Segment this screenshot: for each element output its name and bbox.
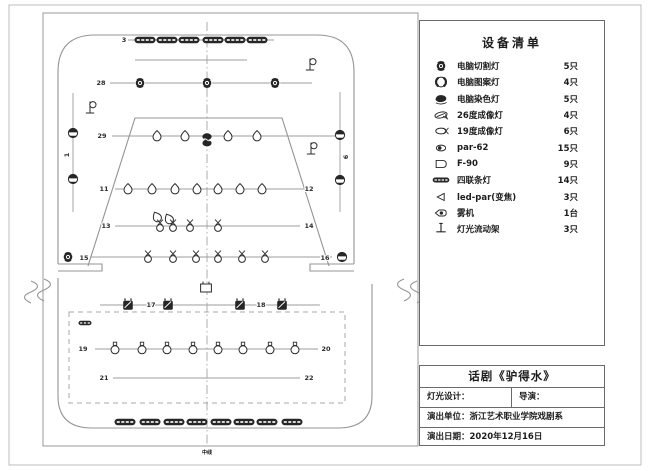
director-field: 导演： bbox=[512, 388, 604, 407]
fixture-droplet bbox=[258, 184, 266, 194]
row-number-label: 16 bbox=[320, 254, 330, 262]
moving-head-gobo-icon bbox=[429, 75, 453, 89]
fixture-strip bbox=[234, 419, 255, 425]
fixture-mover bbox=[202, 78, 212, 88]
fixture-strip bbox=[203, 37, 224, 43]
equipment-row: 电脑染色灯5只 bbox=[429, 91, 578, 107]
equipment-name: 雾机 bbox=[453, 207, 546, 219]
company-value: 浙江艺术职业学院戏剧系 bbox=[470, 408, 564, 427]
profile-19deg-icon bbox=[429, 124, 453, 138]
moving-head-wash-icon bbox=[429, 92, 453, 106]
row-number-label: 11 bbox=[99, 185, 109, 193]
fixture-washsq bbox=[277, 298, 287, 309]
fixture-boomfix bbox=[335, 130, 344, 139]
fixture-stripsmall bbox=[79, 321, 92, 325]
fixture-bell bbox=[215, 251, 222, 263]
fixture-hazer bbox=[201, 282, 212, 292]
fixture-droplet bbox=[193, 184, 201, 194]
row-number-label: 15 bbox=[79, 254, 89, 262]
equipment-name: par-62 bbox=[453, 143, 546, 153]
equipment-qty: 9只 bbox=[546, 158, 578, 170]
fixture-strip bbox=[135, 37, 156, 43]
equipment-row: par-6215只 bbox=[429, 139, 578, 155]
fixture-bell bbox=[215, 220, 222, 232]
proscenium-left bbox=[58, 264, 102, 271]
equipment-row: 四联条灯14只 bbox=[429, 172, 578, 188]
equipment-name: 电脑切割灯 bbox=[453, 60, 546, 72]
equipment-qty: 15只 bbox=[546, 142, 578, 154]
fixture-strip bbox=[187, 419, 208, 425]
equipment-row: 灯光流动架3只 bbox=[429, 221, 578, 237]
equipment-row: 26度成像灯4只 bbox=[429, 107, 578, 123]
equipment-qty: 1台 bbox=[546, 207, 578, 219]
row-number-label: 13 bbox=[101, 222, 110, 230]
equipment-row: 19度成像灯6只 bbox=[429, 123, 578, 139]
fixture-mover bbox=[135, 78, 145, 88]
fixture-droplet bbox=[148, 184, 156, 194]
profile-26deg-icon bbox=[429, 108, 453, 122]
f90-lamp-icon bbox=[429, 157, 453, 171]
row-number-label: 21 bbox=[99, 374, 109, 382]
fixture-mover bbox=[63, 252, 73, 262]
fixture-strip bbox=[115, 419, 136, 425]
row-number-label: 14 bbox=[304, 222, 314, 230]
fixture-flag bbox=[307, 143, 317, 155]
fixture-flag bbox=[306, 59, 316, 71]
fixture-parhead bbox=[189, 342, 197, 354]
lighting-designer-field: 灯光设计： bbox=[420, 388, 512, 407]
equipment-qty: 3只 bbox=[546, 191, 578, 203]
fixture-droplet bbox=[153, 131, 161, 141]
fixture-parhead bbox=[138, 342, 146, 354]
fixture-washsq bbox=[163, 298, 173, 309]
fixture-washsq bbox=[123, 298, 133, 309]
production-title: 话剧《驴得水》 bbox=[420, 366, 604, 388]
equipment-qty: 5只 bbox=[546, 60, 578, 72]
fixture-boomfix bbox=[335, 175, 344, 184]
equipment-list-title: 设备清单 bbox=[420, 34, 604, 51]
fixture-parhead bbox=[111, 342, 119, 354]
equipment-qty: 6只 bbox=[546, 125, 578, 137]
equipment-row: 电脑图案灯4只 bbox=[429, 74, 578, 90]
fixture-bell bbox=[187, 220, 194, 232]
equipment-qty: 4只 bbox=[546, 76, 578, 88]
fixture-parhead bbox=[239, 342, 247, 354]
equipment-name: 电脑染色灯 bbox=[453, 93, 546, 105]
equipment-qty: 5只 bbox=[546, 93, 578, 105]
center-line-label: 中线 bbox=[202, 449, 212, 456]
fixture-washpair bbox=[202, 133, 211, 146]
row-number-label: 3 bbox=[122, 36, 127, 44]
fixture-strip bbox=[140, 419, 161, 425]
date-value: 2020年12月16日 bbox=[470, 428, 543, 447]
equipment-qty: 3只 bbox=[546, 223, 578, 235]
fixture-bell bbox=[262, 251, 269, 263]
led-par-zoom-icon bbox=[429, 190, 453, 204]
fixture-bell bbox=[145, 251, 152, 263]
equipment-name: 电脑图案灯 bbox=[453, 76, 546, 88]
equipment-name: 灯光流动架 bbox=[453, 223, 546, 235]
credits-row: 灯光设计： 导演： bbox=[420, 388, 604, 408]
company-field: 演出单位： 浙江艺术职业学院戏剧系 bbox=[420, 408, 604, 428]
fixture-washsq bbox=[235, 298, 245, 309]
date-label: 演出日期： bbox=[427, 428, 470, 447]
equipment-qty: 14只 bbox=[546, 174, 578, 186]
row-number-label: 29 bbox=[97, 132, 107, 140]
row-number-label: 18 bbox=[256, 301, 266, 309]
fixture-parhead bbox=[163, 342, 171, 354]
fixture-droplet bbox=[181, 131, 189, 141]
fog-machine-icon bbox=[429, 206, 453, 220]
fixture-flag bbox=[86, 102, 96, 114]
equipment-name: 19度成像灯 bbox=[453, 125, 546, 137]
light-stand-icon bbox=[429, 222, 453, 236]
fixture-bell bbox=[170, 251, 177, 263]
fixture-droplet bbox=[124, 184, 132, 194]
fixture-strip bbox=[179, 37, 200, 43]
fixture-strip bbox=[157, 37, 178, 43]
row-number-label: 19 bbox=[78, 345, 88, 353]
row-number-label: 20 bbox=[321, 345, 331, 353]
plot-layer: 3282911121314151617181920212216中线 bbox=[63, 36, 350, 456]
break-mark-left bbox=[25, 279, 51, 303]
fixture-strip bbox=[282, 419, 303, 425]
fixture-mover bbox=[270, 78, 280, 88]
equipment-row: led-par(变焦)3只 bbox=[429, 188, 578, 204]
fixture-strip bbox=[225, 37, 246, 43]
par-can-icon bbox=[429, 141, 453, 155]
equipment-list-panel: 设备清单 电脑切割灯5只电脑图案灯4只电脑染色灯5只26度成像灯4只19度成像灯… bbox=[419, 20, 605, 346]
fixture-strip bbox=[247, 37, 268, 43]
fixture-droplet bbox=[224, 131, 232, 141]
equipment-name: 26度成像灯 bbox=[453, 109, 546, 121]
fixture-droplet bbox=[171, 184, 179, 194]
fixture-boomfix bbox=[337, 252, 346, 261]
row-number-label: 6 bbox=[342, 154, 350, 159]
moving-head-spot-icon bbox=[429, 59, 453, 73]
date-field: 演出日期： 2020年12月16日 bbox=[420, 428, 604, 447]
proscenium-right bbox=[310, 264, 354, 271]
quad-strip-light-icon bbox=[429, 173, 453, 187]
fixture-bell bbox=[193, 251, 200, 263]
company-label: 演出单位： bbox=[427, 408, 470, 427]
row-number-label: 28 bbox=[96, 79, 106, 87]
fixture-boomfix bbox=[68, 128, 77, 137]
fixture-strip bbox=[211, 419, 232, 425]
fixture-parhead bbox=[214, 342, 222, 354]
fixture-strip bbox=[257, 419, 278, 425]
equipment-qty: 4只 bbox=[546, 109, 578, 121]
row-number-label: 17 bbox=[146, 301, 155, 309]
fixture-parhead bbox=[266, 342, 274, 354]
equipment-name: led-par(变焦) bbox=[453, 191, 546, 203]
title-block: 话剧《驴得水》 灯光设计： 导演： 演出单位： 浙江艺术职业学院戏剧系 演出日期… bbox=[419, 365, 605, 446]
fixture-droplet bbox=[214, 184, 222, 194]
fixture-droplet bbox=[236, 184, 244, 194]
row-number-label: 1 bbox=[63, 152, 71, 157]
row-number-label: 22 bbox=[304, 374, 313, 382]
equipment-name: 四联条灯 bbox=[453, 174, 546, 186]
equipment-row: F-909只 bbox=[429, 156, 578, 172]
equipment-row: 电脑切割灯5只 bbox=[429, 58, 578, 74]
fixture-parhead bbox=[291, 342, 299, 354]
fixture-bell bbox=[239, 251, 246, 263]
fixture-boomfix bbox=[68, 174, 77, 183]
fixture-droplet bbox=[253, 131, 261, 141]
fixture-strip bbox=[164, 419, 185, 425]
row-number-label: 12 bbox=[304, 185, 313, 193]
equipment-row: 雾机1台 bbox=[429, 205, 578, 221]
equipment-name: F-90 bbox=[453, 159, 546, 169]
equipment-rows: 电脑切割灯5只电脑图案灯4只电脑染色灯5只26度成像灯4只19度成像灯6只par… bbox=[420, 58, 604, 237]
